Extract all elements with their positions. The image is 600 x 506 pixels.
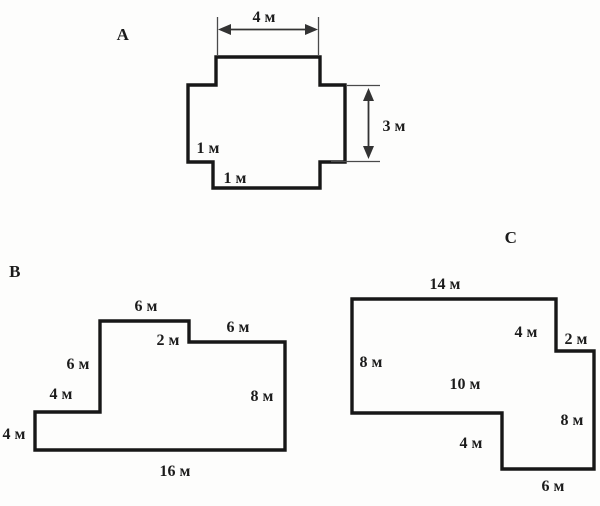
figure-b-label-top-right: 6 м xyxy=(227,319,250,336)
figure-a-label-bottom-notch: 1 м xyxy=(224,170,247,187)
figure-a-title: A xyxy=(117,25,130,44)
figure-c-label-bottom: 6 м xyxy=(542,478,565,495)
figure-c-label-right-upper: 4 м xyxy=(515,324,538,341)
figure-b-label-step: 2 м xyxy=(157,332,180,349)
figure-c-label-left: 8 м xyxy=(360,354,383,371)
figure-b-label-left-lower: 4 м xyxy=(3,426,26,443)
diagram-page: A 4 м 3 м 1 м 1 м B 6 м 2 м 6 м 6 м 4 м … xyxy=(0,0,600,506)
figure-b-label-right: 8 м xyxy=(251,388,274,405)
figure-b-label-ledge: 4 м xyxy=(50,386,73,403)
figure-c-label-top: 14 м xyxy=(430,276,461,293)
figure-a-label-top-width: 4 м xyxy=(253,9,276,26)
figure-c-label-middle: 10 м xyxy=(450,376,481,393)
figure-c: C 14 м 4 м 2 м 8 м 10 м 8 м 4 м 6 м xyxy=(352,228,594,495)
figure-c-title: C xyxy=(505,228,518,247)
figure-a-label-left-notch: 1 м xyxy=(197,140,220,157)
figure-c-label-right-lower: 8 м xyxy=(561,412,584,429)
figure-a: A 4 м 3 м 1 м 1 м xyxy=(117,9,406,188)
arrowhead-right-icon xyxy=(305,24,318,35)
figure-a-label-right-height: 3 м xyxy=(383,118,406,135)
figure-b-title: B xyxy=(9,262,21,281)
diagram-canvas: A 4 м 3 м 1 м 1 м B 6 м 2 м 6 м 6 м 4 м … xyxy=(0,0,600,506)
figure-c-label-bottom-step: 4 м xyxy=(460,435,483,452)
figure-a-outline xyxy=(188,57,345,188)
figure-c-label-step: 2 м xyxy=(565,331,588,348)
figure-b-label-top-left: 6 м xyxy=(135,298,158,315)
arrowhead-down-icon xyxy=(363,146,374,159)
arrowhead-left-icon xyxy=(218,24,231,35)
figure-b-label-bottom: 16 м xyxy=(160,463,191,480)
arrowhead-up-icon xyxy=(363,88,374,101)
figure-b-label-left-upper: 6 м xyxy=(67,356,90,373)
figure-b: B 6 м 2 м 6 м 6 м 4 м 4 м 8 м 16 м xyxy=(3,262,285,480)
